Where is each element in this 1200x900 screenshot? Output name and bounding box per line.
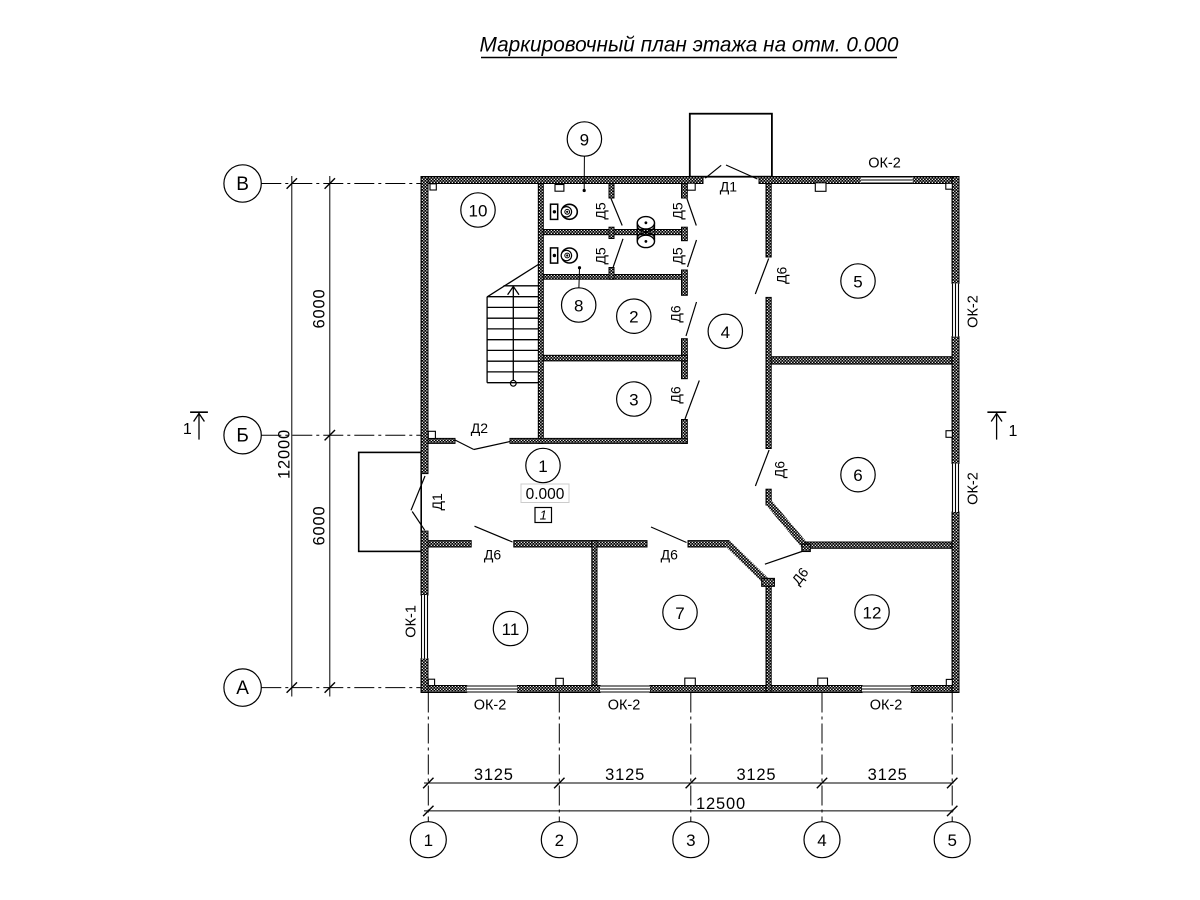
svg-text:4: 4 [721, 323, 730, 342]
svg-text:ОК-2: ОК-2 [966, 472, 982, 505]
svg-text:Д6: Д6 [484, 547, 501, 563]
svg-text:Д5: Д5 [592, 247, 608, 264]
svg-text:Д2: Д2 [471, 420, 488, 436]
svg-text:12: 12 [863, 604, 882, 623]
svg-text:6: 6 [853, 466, 862, 485]
svg-text:6000: 6000 [311, 506, 329, 546]
svg-text:3: 3 [686, 831, 695, 850]
svg-text:1: 1 [183, 421, 192, 438]
svg-text:Д6: Д6 [774, 266, 790, 283]
svg-text:А: А [236, 678, 249, 699]
svg-text:Маркировочный план этажа на от: Маркировочный план этажа на отм. 0.000 [480, 34, 899, 57]
svg-text:4: 4 [817, 831, 826, 850]
svg-text:7: 7 [675, 604, 684, 623]
svg-text:Д6: Д6 [772, 461, 788, 478]
svg-text:2: 2 [629, 308, 638, 327]
svg-text:Б: Б [236, 426, 248, 447]
svg-text:12500: 12500 [696, 795, 746, 813]
svg-text:5: 5 [947, 831, 956, 850]
svg-text:5: 5 [853, 273, 862, 292]
svg-text:Д1: Д1 [429, 493, 445, 510]
svg-text:8: 8 [574, 297, 583, 316]
svg-text:Д6: Д6 [668, 386, 684, 403]
svg-text:В: В [236, 174, 249, 195]
svg-text:1: 1 [538, 457, 547, 476]
svg-text:3125: 3125 [868, 766, 908, 784]
svg-text:ОК-2: ОК-2 [608, 698, 641, 714]
svg-text:9: 9 [580, 131, 589, 150]
svg-text:Д5: Д5 [670, 202, 686, 219]
svg-text:ОК-2: ОК-2 [966, 295, 982, 328]
svg-text:ОК-2: ОК-2 [868, 155, 901, 171]
svg-text:Д6: Д6 [661, 547, 678, 563]
svg-text:ОК-2: ОК-2 [870, 698, 903, 714]
svg-text:12000: 12000 [276, 429, 294, 479]
svg-text:Д5: Д5 [592, 202, 608, 219]
svg-text:10: 10 [469, 202, 488, 221]
svg-text:Д1: Д1 [720, 179, 737, 195]
svg-text:3: 3 [629, 391, 638, 410]
svg-text:11: 11 [502, 620, 520, 639]
svg-text:Д5: Д5 [670, 247, 686, 264]
svg-text:0.000: 0.000 [526, 486, 565, 503]
svg-text:6000: 6000 [311, 289, 329, 329]
svg-text:3125: 3125 [605, 766, 645, 784]
svg-text:1: 1 [1009, 423, 1018, 440]
svg-text:Д6: Д6 [668, 305, 684, 322]
svg-text:1: 1 [540, 508, 547, 523]
svg-text:ОК-1: ОК-1 [404, 605, 420, 638]
svg-text:ОК-2: ОК-2 [474, 698, 507, 714]
svg-text:2: 2 [555, 831, 564, 850]
svg-text:3125: 3125 [474, 766, 514, 784]
svg-text:1: 1 [424, 831, 433, 850]
svg-text:3125: 3125 [736, 766, 776, 784]
